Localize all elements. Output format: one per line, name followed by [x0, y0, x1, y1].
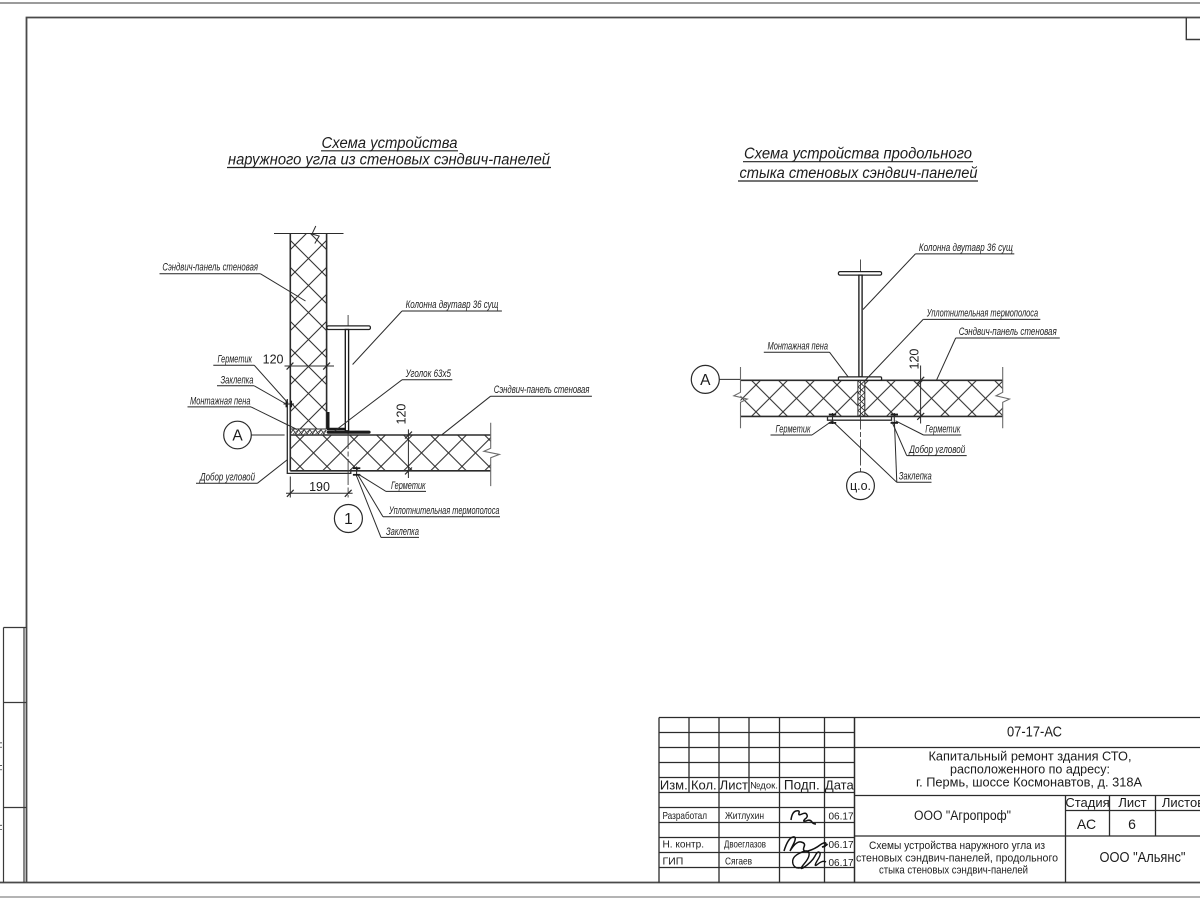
svg-text:Герметик: Герметик [391, 480, 426, 492]
svg-text:Изм.: Изм. [660, 778, 688, 793]
svg-text:Двоеглазов: Двоеглазов [724, 839, 766, 851]
svg-text:АС: АС [1077, 816, 1096, 832]
svg-text:Инв. № подл.: Инв. № подл. [0, 817, 2, 873]
svg-text:Житлухин: Житлухин [725, 810, 764, 822]
svg-text:Уплотнительная термополоса: Уплотнительная термополоса [926, 308, 1038, 320]
svg-text:ООО "Альянс": ООО "Альянс" [1100, 850, 1186, 866]
svg-text:07-17-АС: 07-17-АС [1007, 725, 1062, 741]
svg-text:120: 120 [263, 353, 284, 367]
svg-text:Схема устройства: Схема устройства [322, 135, 458, 152]
svg-text:Разработал: Разработал [663, 810, 708, 822]
svg-text:Взам. инв. №: Взам. инв. № [0, 637, 2, 693]
svg-text:1: 1 [344, 511, 353, 528]
svg-text:А: А [700, 372, 711, 389]
svg-text:Уплотнительная термополоса: Уплотнительная термополоса [388, 505, 499, 517]
svg-text:Колонна двутавр 36 сущ: Колонна двутавр 36 сущ [406, 299, 499, 311]
svg-text:Заклепка: Заклепка [386, 526, 419, 538]
svg-text:стыка стеновых сэндвич-панелей: стыка стеновых сэндвич-панелей [740, 165, 978, 182]
svg-text:Кол.: Кол. [691, 778, 717, 793]
svg-text:Лист: Лист [1118, 795, 1146, 810]
svg-text:06.17: 06.17 [828, 812, 853, 823]
svg-text:стыка стеновых сэндвич-панелей: стыка стеновых сэндвич-панелей [879, 865, 1028, 877]
svg-text:Листов: Листов [1162, 795, 1200, 810]
svg-text:А: А [232, 428, 243, 445]
svg-text:190: 190 [309, 480, 330, 494]
svg-text:ООО "Агропроф": ООО "Агропроф" [914, 808, 1011, 823]
svg-text:120: 120 [395, 404, 409, 425]
svg-text:г. Пермь, шоссе Космонавтов, д: г. Пермь, шоссе Космонавтов, д. 318А [916, 775, 1142, 790]
svg-text:Герметик: Герметик [925, 424, 961, 436]
svg-text:Монтажная пена: Монтажная пена [190, 395, 251, 407]
svg-text:Заклепка: Заклепка [221, 374, 254, 386]
svg-text:Н. контр.: Н. контр. [663, 839, 705, 851]
svg-text:стеновых сэндвич-панелей, прод: стеновых сэндвич-панелей, продольного [856, 852, 1058, 864]
svg-text:Монтажная пена: Монтажная пена [768, 340, 829, 352]
svg-text:Подп. и дата: Подп. и дата [0, 728, 2, 781]
svg-text:Схема устройства продольного: Схема устройства продольного [744, 146, 972, 163]
svg-text:Дата: Дата [825, 778, 855, 793]
svg-text:Схемы устройства наружного угл: Схемы устройства наружного угла из [869, 840, 1045, 852]
svg-text:Сягаев: Сягаев [725, 856, 752, 868]
svg-text:Герметик: Герметик [776, 424, 812, 436]
svg-text:Сэндвич-панель стеновая: Сэндвич-панель стеновая [162, 261, 258, 273]
svg-text:Сэндвич-панель стеновая: Сэндвич-панель стеновая [494, 384, 590, 396]
svg-text:06.17: 06.17 [828, 840, 853, 851]
svg-text:Подп.: Подп. [784, 778, 820, 793]
svg-text:Лист: Лист [720, 778, 748, 793]
svg-text:Заклепка: Заклепка [899, 470, 932, 482]
svg-text:ц.о.: ц.о. [850, 479, 871, 493]
svg-text:ГИП: ГИП [663, 856, 684, 868]
svg-text:Добор угловой: Добор угловой [908, 444, 965, 456]
svg-text:Герметик: Герметик [218, 354, 253, 366]
svg-text:наружного угла из стеновых сэн: наружного угла из стеновых сэндвич-панел… [228, 152, 550, 169]
svg-text:Уголок 63х5: Уголок 63х5 [405, 368, 452, 380]
svg-text:Добор угловой: Добор угловой [199, 472, 255, 484]
svg-text:Стадия: Стадия [1065, 795, 1109, 810]
svg-text:№док.: №док. [750, 781, 778, 792]
svg-text:6: 6 [1128, 816, 1136, 832]
svg-text:06.17: 06.17 [828, 858, 853, 869]
svg-text:Колонна двутавр 36 сущ: Колонна двутавр 36 сущ [919, 242, 1013, 254]
svg-text:Сэндвич-панель стеновая: Сэндвич-панель стеновая [959, 326, 1057, 338]
svg-text:120: 120 [908, 349, 922, 370]
